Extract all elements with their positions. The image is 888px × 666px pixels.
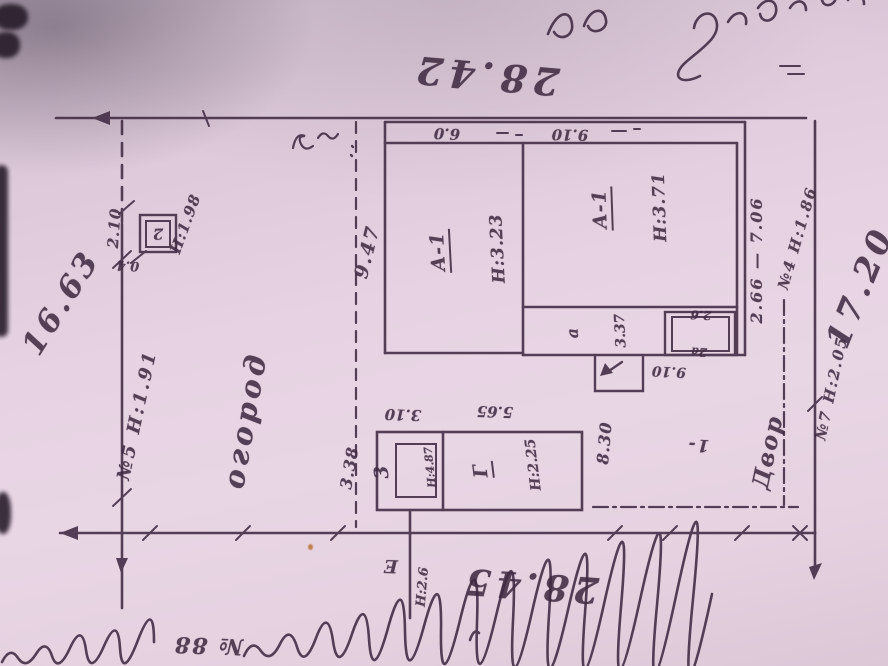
fence-mark-e: Е: [384, 556, 398, 575]
shed-room-main-height: Н:2.25: [523, 438, 544, 492]
squiggle-mark: [293, 135, 313, 148]
plan-linework: [0, 0, 888, 666]
kiosk-litera: 2: [153, 225, 164, 241]
edge-artifact: [0, 165, 8, 337]
dim-shed-right: 8.30: [595, 421, 615, 465]
shed-room-small-height: Н:4.87: [422, 446, 437, 488]
top-caption-cursive: [548, 0, 888, 80]
fence-mark-e-height: Н:2.6: [415, 567, 432, 608]
room-left-litera: А-1: [428, 229, 453, 274]
dim-shed-top-left: 3.10: [384, 406, 421, 423]
dust-speck: [308, 544, 313, 550]
kiosk-width: 2.10: [106, 207, 124, 249]
room-right-height: Н:3.71: [651, 172, 671, 242]
shed-room-small-litera: 3: [370, 451, 394, 494]
room-left-height: Н:3.23: [488, 213, 509, 284]
bottom-caption-cursive: [2, 522, 712, 666]
house-room-right-label: А-1 Н:3.71: [551, 170, 709, 245]
house-room-left-label: А-1 Н:3.23: [388, 211, 547, 289]
house-number: № 88: [173, 633, 244, 658]
shed-room-main-litera: Г: [471, 461, 495, 481]
dim-front-left: 6.0: [434, 125, 461, 141]
edge-artifact: [0, 4, 28, 30]
room-right-litera: А-1: [590, 187, 614, 231]
annex-label: а 3.37: [531, 312, 661, 353]
dim-porch: 9.10: [652, 363, 687, 379]
dim-right-span: 2.66 — 7.06: [749, 196, 765, 323]
annex-litera: а: [564, 316, 582, 351]
plan-photo: 28.42 16.63 №5 Н:1.91 2.10 2 0.4 Н:1.98 …: [0, 0, 888, 666]
yard-mark-1: 1-: [686, 435, 710, 454]
box-2a-dim: 2.6: [690, 308, 712, 321]
box-2a-litera: 2а: [688, 345, 710, 358]
annex-length: 3.37: [612, 313, 628, 348]
dim-front-right: 9.10: [552, 126, 589, 142]
dim-bottom-length: 28.45: [460, 562, 600, 608]
porch-outline: [595, 355, 643, 391]
dim-shed-top-right: 5.65: [476, 403, 513, 420]
kiosk-depth: 0.4: [116, 258, 139, 272]
